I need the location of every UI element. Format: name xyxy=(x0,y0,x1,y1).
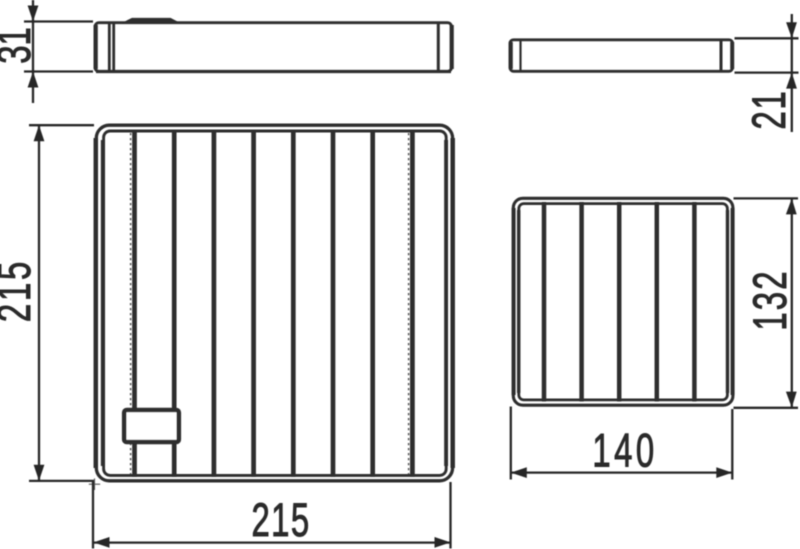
svg-text:31: 31 xyxy=(0,27,41,64)
svg-text:215: 215 xyxy=(0,259,41,322)
svg-text:132: 132 xyxy=(743,269,796,330)
svg-text:21: 21 xyxy=(742,89,795,129)
svg-text:140: 140 xyxy=(592,424,657,477)
svg-text:215: 215 xyxy=(251,493,310,546)
